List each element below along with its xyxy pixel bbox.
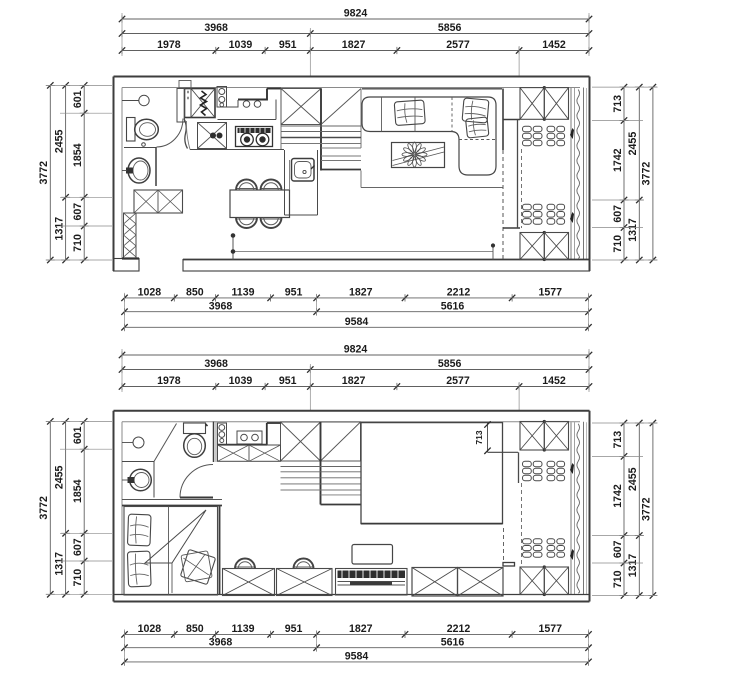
svg-text:951: 951 — [285, 623, 303, 635]
svg-text:3772: 3772 — [641, 497, 653, 521]
svg-text:3772: 3772 — [38, 161, 50, 185]
svg-text:2455: 2455 — [627, 132, 639, 156]
svg-text:1039: 1039 — [229, 375, 253, 387]
svg-text:1028: 1028 — [138, 287, 162, 299]
svg-text:2212: 2212 — [447, 623, 471, 635]
svg-text:9584: 9584 — [345, 651, 369, 663]
svg-text:713: 713 — [612, 95, 624, 113]
svg-text:601: 601 — [72, 426, 84, 444]
svg-text:850: 850 — [186, 287, 204, 299]
svg-text:1452: 1452 — [542, 39, 566, 51]
svg-text:850: 850 — [186, 623, 204, 635]
svg-text:3968: 3968 — [204, 358, 228, 370]
svg-text:3968: 3968 — [209, 636, 233, 648]
svg-text:1139: 1139 — [232, 287, 255, 299]
svg-text:1577: 1577 — [539, 287, 563, 299]
svg-text:1827: 1827 — [342, 39, 366, 51]
svg-text:1742: 1742 — [612, 484, 624, 508]
svg-text:2455: 2455 — [627, 467, 639, 491]
svg-text:951: 951 — [285, 287, 303, 299]
svg-text:951: 951 — [279, 375, 297, 387]
svg-text:1827: 1827 — [342, 375, 366, 387]
svg-text:1978: 1978 — [157, 375, 181, 387]
svg-text:2455: 2455 — [53, 129, 65, 153]
svg-text:1139: 1139 — [232, 623, 255, 635]
svg-text:951: 951 — [279, 39, 297, 51]
svg-text:710: 710 — [612, 235, 624, 253]
svg-text:1317: 1317 — [627, 554, 639, 578]
svg-text:1827: 1827 — [349, 287, 373, 299]
svg-text:2577: 2577 — [446, 39, 470, 51]
svg-text:607: 607 — [72, 538, 84, 556]
svg-text:1028: 1028 — [138, 623, 162, 635]
svg-text:3772: 3772 — [641, 162, 653, 186]
svg-text:1978: 1978 — [157, 39, 181, 51]
svg-text:601: 601 — [72, 90, 84, 108]
svg-text:3968: 3968 — [204, 22, 228, 34]
svg-text:1827: 1827 — [349, 623, 373, 635]
svg-text:1317: 1317 — [53, 217, 65, 241]
svg-text:9584: 9584 — [345, 316, 369, 328]
svg-text:607: 607 — [72, 203, 84, 221]
svg-text:1317: 1317 — [627, 218, 639, 242]
svg-text:1854: 1854 — [72, 143, 84, 167]
svg-text:710: 710 — [72, 569, 84, 587]
svg-text:2212: 2212 — [447, 287, 471, 299]
svg-text:9824: 9824 — [344, 8, 368, 20]
svg-text:5856: 5856 — [438, 22, 462, 34]
svg-text:2455: 2455 — [53, 465, 65, 489]
svg-text:1039: 1039 — [229, 39, 253, 51]
svg-text:3772: 3772 — [38, 496, 50, 520]
svg-text:3968: 3968 — [209, 300, 233, 312]
svg-text:1452: 1452 — [542, 375, 566, 387]
svg-text:607: 607 — [612, 540, 624, 558]
svg-text:1854: 1854 — [72, 479, 84, 503]
svg-text:710: 710 — [612, 570, 624, 588]
svg-text:713: 713 — [612, 431, 624, 449]
svg-text:5616: 5616 — [441, 636, 465, 648]
svg-text:1577: 1577 — [539, 623, 563, 635]
svg-text:9824: 9824 — [344, 344, 368, 356]
svg-text:1742: 1742 — [612, 148, 624, 172]
svg-text:713: 713 — [474, 430, 484, 444]
svg-text:2577: 2577 — [446, 375, 470, 387]
svg-text:1317: 1317 — [53, 552, 65, 576]
svg-text:5856: 5856 — [438, 358, 462, 370]
svg-text:710: 710 — [72, 234, 84, 252]
svg-text:5616: 5616 — [441, 300, 465, 312]
svg-text:607: 607 — [612, 205, 624, 223]
